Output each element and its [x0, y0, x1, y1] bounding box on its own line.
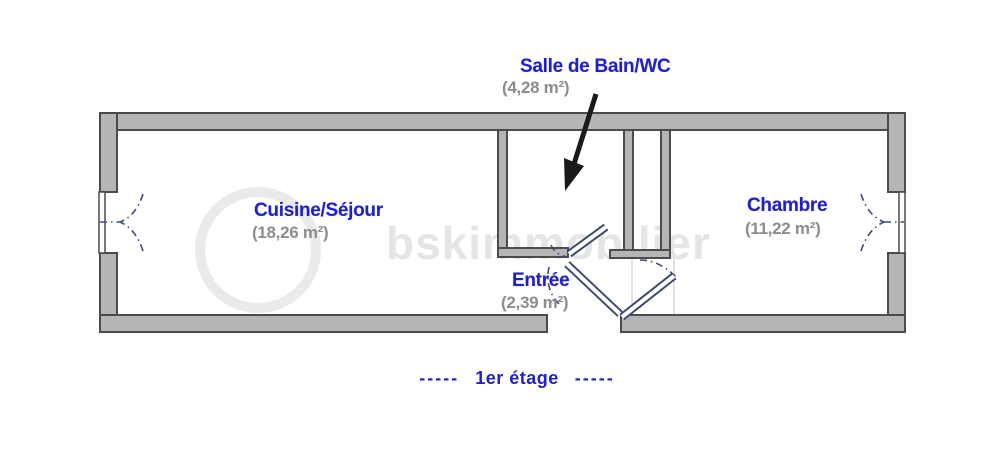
casement-window-right-icon [861, 192, 905, 253]
floor-caption: ----- 1er étage ----- [367, 368, 667, 389]
room-area-entry: (2,39 m²) [501, 294, 568, 312]
room-label-entry: Entrée [512, 271, 569, 291]
floor-plan-page: bskimmobilier [0, 0, 989, 476]
room-label-bathroom: Salle de Bain/WC [520, 57, 670, 77]
room-area-bedroom: (11,22 m²) [745, 220, 820, 238]
room-area-living: (18,26 m²) [252, 224, 328, 242]
floor-caption-text: 1er étage [475, 368, 559, 389]
floor-caption-dashes-right: ----- [575, 368, 615, 389]
floor-caption-dashes-left: ----- [419, 368, 459, 389]
room-area-bathroom: (4,28 m²) [502, 79, 569, 97]
entrance-door-right-icon [622, 260, 676, 317]
casement-window-left-icon [99, 192, 143, 253]
pointer-arrow-icon [564, 94, 596, 191]
room-label-bedroom: Chambre [747, 196, 827, 216]
room-label-living: Cuisine/Séjour [254, 201, 383, 221]
floor-plan-drawing [0, 0, 989, 476]
